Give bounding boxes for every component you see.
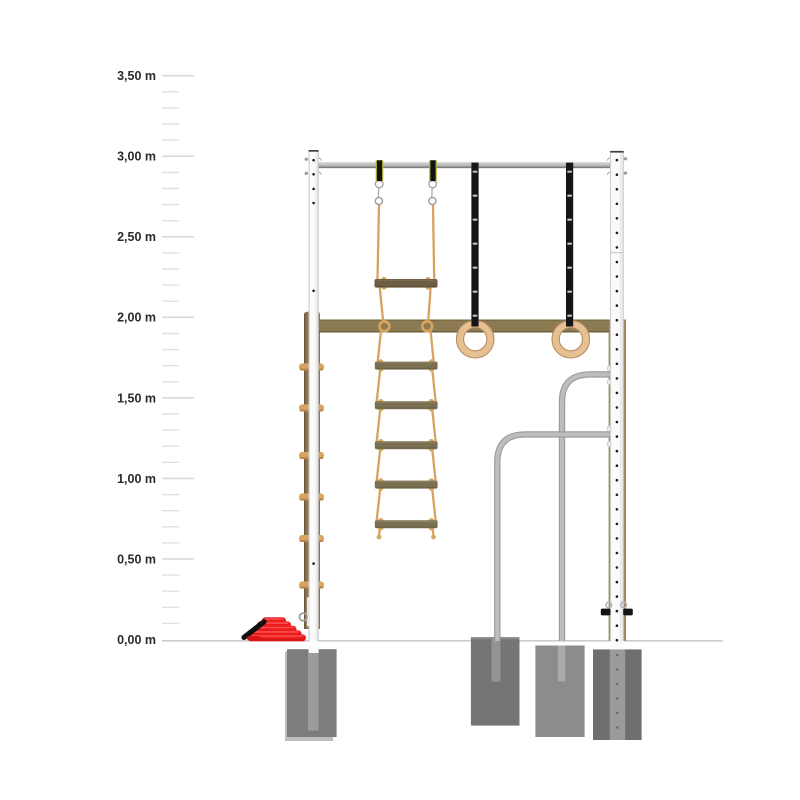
svg-text:0,00 m: 0,00 m xyxy=(117,633,156,647)
svg-text:0,50 m: 0,50 m xyxy=(117,552,156,566)
svg-text:3,00 m: 3,00 m xyxy=(117,150,156,164)
svg-text:3,50 m: 3,50 m xyxy=(117,69,156,83)
svg-text:1,00 m: 1,00 m xyxy=(117,472,156,486)
svg-text:2,00 m: 2,00 m xyxy=(117,311,156,325)
svg-text:2,50 m: 2,50 m xyxy=(117,230,156,244)
svg-text:1,50 m: 1,50 m xyxy=(117,391,156,405)
